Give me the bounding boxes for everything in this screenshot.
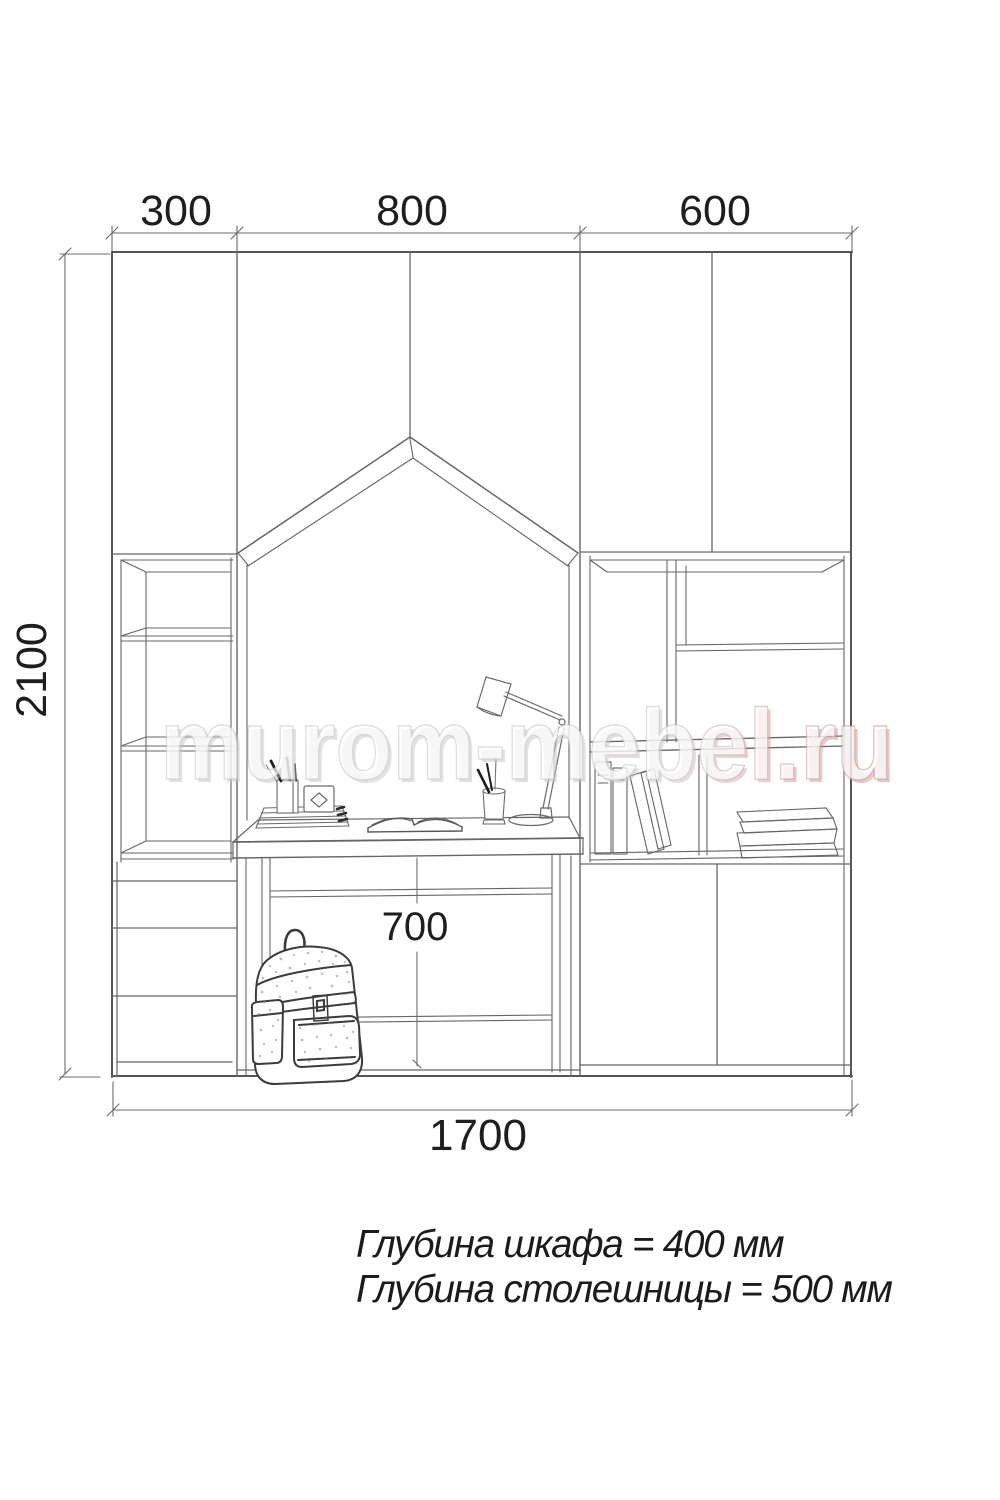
svg-text:800: 800 xyxy=(376,187,448,235)
svg-text:murom-mebel.ru: murom-mebel.ru xyxy=(160,689,893,801)
svg-text:Глубина столешницы = 500 мм: Глубина столешницы = 500 мм xyxy=(356,1268,892,1311)
svg-text:700: 700 xyxy=(382,905,449,949)
svg-text:1700: 1700 xyxy=(429,1111,527,1160)
svg-text:600: 600 xyxy=(679,187,751,235)
svg-text:300: 300 xyxy=(140,187,212,235)
svg-text:2100: 2100 xyxy=(8,622,56,718)
svg-text:Глубина шкафа = 400 мм: Глубина шкафа = 400 мм xyxy=(356,1223,784,1266)
